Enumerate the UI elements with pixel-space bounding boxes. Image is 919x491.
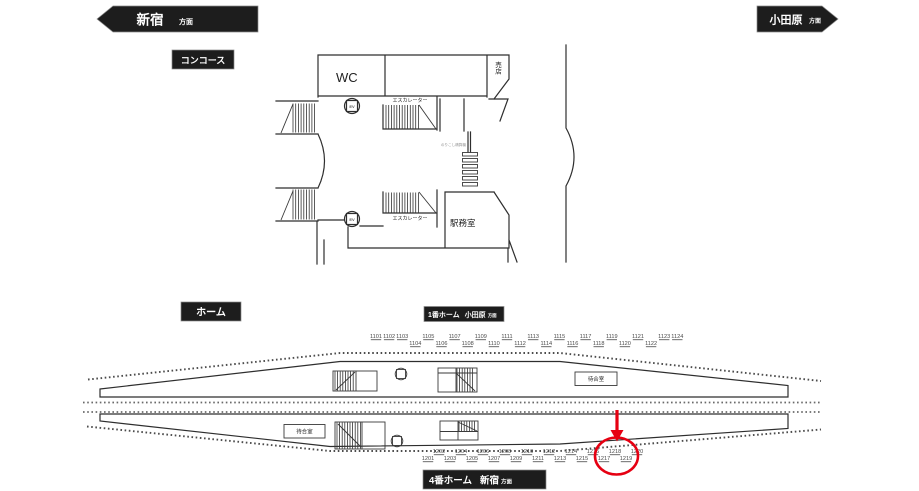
platform1-badge: 1番ホーム小田原方面 [424,307,504,322]
ad-position-number: 1209 [510,456,522,462]
ad-position-number: 1102 [383,334,395,340]
upper-escalator-box [438,368,477,392]
ad-position-number: 1115 [554,334,566,340]
right-arrow-suffix: 方面 [809,17,821,25]
ad-position-number: 1112 [514,341,526,347]
platform4-badge: 4番ホーム新宿方面 [423,470,546,489]
ladder-step [463,171,478,175]
ad-position-number: 1219 [620,456,632,462]
ad-position-number: 1205 [466,456,478,462]
concourse-walls [276,45,574,264]
station-map-svg: 新宿 方面 小田原 方面 コンコース のりこし精算機 EV EV WC 売店 [0,0,919,491]
ad-position-number: 1103 [396,334,408,340]
ad-position-number: 1121 [632,334,644,340]
left-arrow-station: 新宿 [137,12,164,28]
elevator-icon: EV [345,212,360,227]
ad-position-number: 1110 [488,341,500,347]
ad-position-number: 1212 [543,449,555,455]
ad-position-number: 1207 [488,456,500,462]
escalator-bottom-label: エスカレーター [392,215,427,222]
ad-position-number: 1123 [658,334,670,340]
platform4-direction: 新宿 [480,475,500,487]
escalator-top-label: エスカレーター [392,97,427,104]
ad-position-number: 1104 [409,341,421,347]
ladder-step [463,153,478,157]
ad-position-number: 1213 [554,456,566,462]
ad-position-number: 1122 [645,341,657,347]
waiting-room-upper: 待合室 [575,372,617,386]
platform-map: ホーム 1番ホーム小田原方面 待合室 [83,104,822,490]
ad-position-number: 1214 [565,449,577,455]
ad-position-number: 1204 [455,449,467,455]
ladder-step [463,165,478,169]
left-arrow-suffix: 方面 [179,17,193,26]
ad-position-number: 1118 [593,341,605,347]
ad-position-number: 1105 [422,334,434,340]
direction-arrow-left: 新宿 方面 [97,6,258,32]
ad-position-number: 1114 [540,341,552,347]
platform1-suffix: 方面 [488,312,497,319]
ad-position-number: 1108 [462,341,474,347]
upper-escalator-divider [438,368,477,392]
elevator-icon [391,435,403,447]
ladder-step [463,159,478,163]
small-sign-label: のりこし精算機 [441,142,467,147]
platform4-ad-numbers: 1201120212031204120512061207120812091210… [422,449,643,462]
platform4-outline [100,414,788,447]
platform1-direction: 小田原 [464,310,486,319]
platform-stairs-ladder [463,153,478,187]
ad-position-number: 1101 [370,334,382,340]
ad-position-number: 1116 [567,341,579,347]
ad-position-number: 1201 [422,456,434,462]
elevator-icon: EV [345,99,360,114]
ad-position-number: 1208 [499,449,511,455]
station-office-label: 駅務室 [450,218,476,228]
svg-text:EV: EV [349,217,355,222]
svg-text:待合室: 待合室 [588,375,605,383]
home-badge-label: ホーム [196,307,226,319]
ad-position-number: 1211 [532,456,544,462]
direction-arrow-right: 小田原 方面 [757,6,838,32]
ladder-step [463,183,478,187]
concourse-badge-label: コンコース [181,56,226,66]
track-dotted-bottom [87,427,821,452]
ad-position-number: 1120 [619,341,631,347]
elevator-icon [395,368,407,380]
shop-label: 売店 [494,60,502,76]
ad-position-number: 1111 [501,334,512,340]
ad-position-number: 1119 [606,334,618,340]
ad-position-number: 1217 [598,456,610,462]
right-arrow-station: 小田原 [769,13,803,27]
platform4-suffix: 方面 [501,478,513,486]
waiting-room-lower: 待合室 [284,425,325,439]
concourse-map: コンコース のりこし精算機 EV EV WC 売店 エスカレーター エスカレータ… [172,45,574,264]
platform1-ad-numbers: 1101110211031104110511061107110811091110… [370,334,683,347]
wc-label: WC [336,70,358,85]
ad-position-number: 1203 [444,456,456,462]
ad-position-number: 1106 [435,341,447,347]
ad-position-number: 1107 [449,334,461,340]
ad-position-number: 1206 [477,449,489,455]
ad-position-number: 1202 [433,449,445,455]
ad-position-number: 1124 [671,334,683,340]
highlight-marker [595,410,638,475]
svg-text:EV: EV [349,104,355,109]
station-ad-location-map: 新宿 方面 小田原 方面 コンコース のりこし精算機 EV EV WC 売店 [0,0,919,491]
platform4-name: 4番ホーム [429,475,472,487]
ad-position-number: 1210 [521,449,533,455]
ad-position-number: 1218 [609,449,621,455]
ad-position-number: 1113 [527,334,539,340]
upper-stairs-box [333,371,377,391]
svg-text:待合室: 待合室 [296,428,313,436]
platform1-name: 1番ホーム [428,310,460,319]
ad-position-number: 1117 [580,334,592,340]
ad-position-number: 1109 [475,334,487,340]
ad-position-number: 1215 [576,456,588,462]
left-arrow-shape [97,6,258,32]
ladder-step [463,177,478,181]
